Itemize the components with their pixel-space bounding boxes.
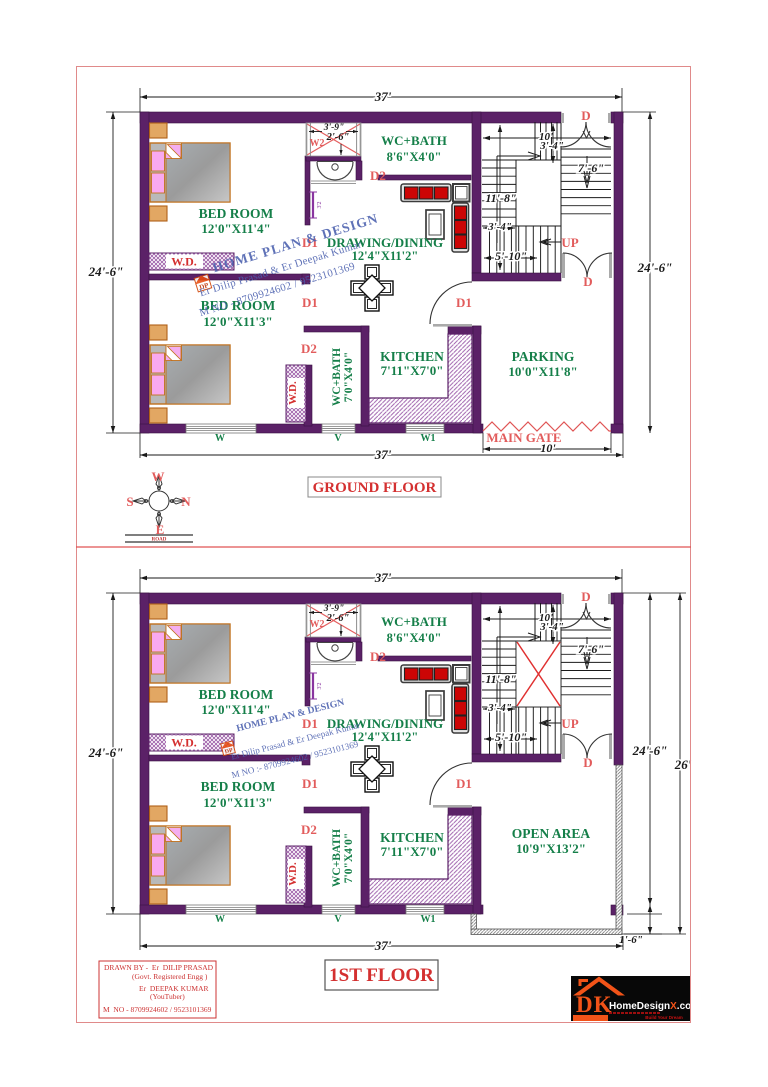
svg-text:37': 37' <box>374 570 392 585</box>
svg-text:3'2: 3'2 <box>317 682 323 689</box>
svg-text:3'2: 3'2 <box>317 201 323 208</box>
svg-text:W.D.: W.D. <box>171 255 197 269</box>
svg-text:S: S <box>126 494 133 509</box>
svg-text:V: V <box>334 433 342 444</box>
svg-text:24'-6": 24'-6" <box>88 745 124 760</box>
svg-text:10'0"X11'8": 10'0"X11'8" <box>508 364 577 379</box>
svg-text:11'-8": 11'-8" <box>485 191 516 205</box>
svg-text:W: W <box>215 914 225 925</box>
svg-text:D1: D1 <box>302 716 318 731</box>
svg-text:7'11"X7'0": 7'11"X7'0" <box>381 844 444 859</box>
svg-text:UP: UP <box>561 716 578 731</box>
svg-text:D1: D1 <box>456 295 472 310</box>
svg-text:W: W <box>152 469 165 484</box>
svg-text:24'-6": 24'-6" <box>88 264 124 279</box>
svg-text:5'-10": 5'-10" <box>495 730 527 744</box>
svg-text:(Govt. Registered Engg ): (Govt. Registered Engg ) <box>132 972 208 981</box>
svg-text:3'-4": 3'-4" <box>539 621 564 633</box>
svg-text:3'-4": 3'-4" <box>539 140 564 152</box>
svg-text:10': 10' <box>540 441 556 455</box>
svg-text:ROAD: ROAD <box>152 538 167 543</box>
svg-text:M NO - 8709924602 / 952310136: M NO - 8709924602 / 9523101369 <box>103 1005 212 1014</box>
svg-text:D: D <box>581 589 590 604</box>
svg-text:BED ROOM: BED ROOM <box>199 687 274 702</box>
svg-text:WC+BATH: WC+BATH <box>381 133 447 148</box>
svg-text:WC+BATH: WC+BATH <box>381 614 447 629</box>
svg-text:12'4"X11'2": 12'4"X11'2" <box>352 249 419 263</box>
svg-text:1ST FLOOR: 1ST FLOOR <box>329 965 434 986</box>
svg-text:KITCHEN: KITCHEN <box>380 349 444 364</box>
svg-text:W1: W1 <box>421 433 436 444</box>
svg-text:W1: W1 <box>421 914 436 925</box>
svg-text:24'-6": 24'-6" <box>632 743 668 758</box>
svg-text:26': 26' <box>674 757 692 772</box>
svg-text:DRAWN BY - Er DILIP PRASAD: DRAWN BY - Er DILIP PRASAD <box>104 963 214 972</box>
svg-text:D1: D1 <box>302 776 318 791</box>
svg-text:8'6"X4'0": 8'6"X4'0" <box>387 150 442 164</box>
svg-text:WC+BATH: WC+BATH <box>331 829 343 887</box>
svg-text:37': 37' <box>374 938 392 953</box>
svg-text:2'-6": 2'-6" <box>326 613 350 624</box>
svg-text:8'6"X4'0": 8'6"X4'0" <box>387 631 442 645</box>
svg-text:5'-10": 5'-10" <box>495 249 527 263</box>
svg-text:12'0"X11'4": 12'0"X11'4" <box>201 221 270 236</box>
svg-text:3'-4": 3'-4" <box>487 702 512 714</box>
svg-text:24'-6": 24'-6" <box>637 260 673 275</box>
svg-text:D1: D1 <box>456 776 472 791</box>
svg-text:12'4"X11'2": 12'4"X11'2" <box>352 730 419 744</box>
svg-text:7'-6": 7'-6" <box>578 161 604 175</box>
svg-text:Build Your Dream: Build Your Dream <box>645 1015 683 1020</box>
svg-text:DK: DK <box>576 992 613 1017</box>
svg-text:W2: W2 <box>310 138 325 149</box>
svg-text:N: N <box>181 494 191 509</box>
svg-text:7'-6": 7'-6" <box>578 642 604 656</box>
svg-text:D: D <box>581 108 590 123</box>
svg-text:KITCHEN: KITCHEN <box>380 830 444 845</box>
svg-text:HomeDesignX.com: HomeDesignX.com <box>609 1001 700 1012</box>
svg-text:37': 37' <box>374 447 392 462</box>
svg-text:3'-4": 3'-4" <box>487 221 512 233</box>
svg-text:2'-6": 2'-6" <box>326 132 350 143</box>
svg-text:11'-8": 11'-8" <box>485 672 516 686</box>
svg-text:7'0"X4'0": 7'0"X4'0" <box>343 352 355 402</box>
svg-text:12'0"X11'3": 12'0"X11'3" <box>203 314 272 329</box>
svg-text:W2: W2 <box>310 619 325 630</box>
svg-text:D2: D2 <box>301 822 317 837</box>
svg-text:W: W <box>215 433 225 444</box>
svg-text:D2: D2 <box>370 168 386 183</box>
svg-text:D: D <box>583 274 592 289</box>
svg-text:UP: UP <box>561 235 578 250</box>
svg-text:7'0"X4'0": 7'0"X4'0" <box>343 833 355 883</box>
svg-text:7'11"X7'0": 7'11"X7'0" <box>381 363 444 378</box>
svg-text:WC+BATH: WC+BATH <box>331 348 343 406</box>
svg-text:D: D <box>583 755 592 770</box>
svg-text:W.D.: W.D. <box>287 862 299 886</box>
svg-text:V: V <box>334 914 342 925</box>
svg-text:BED ROOM: BED ROOM <box>199 206 274 221</box>
svg-text:12'0"X11'3": 12'0"X11'3" <box>203 795 272 810</box>
svg-text:OPEN AREA: OPEN AREA <box>512 826 591 841</box>
svg-text:37': 37' <box>374 89 392 104</box>
svg-text:12'0"X11'4": 12'0"X11'4" <box>201 702 270 717</box>
svg-text:PARKING: PARKING <box>512 349 575 364</box>
svg-text:(YouTuber): (YouTuber) <box>150 992 185 1001</box>
svg-text:10'9"X13'2": 10'9"X13'2" <box>516 841 586 856</box>
svg-text:D1: D1 <box>302 295 318 310</box>
svg-text:BED ROOM: BED ROOM <box>201 779 276 794</box>
svg-text:W.D.: W.D. <box>171 736 197 750</box>
svg-text:W.D.: W.D. <box>287 381 299 405</box>
svg-text:D2: D2 <box>370 649 386 664</box>
svg-text:D2: D2 <box>301 341 317 356</box>
svg-text:GROUND FLOOR: GROUND FLOOR <box>313 480 437 496</box>
